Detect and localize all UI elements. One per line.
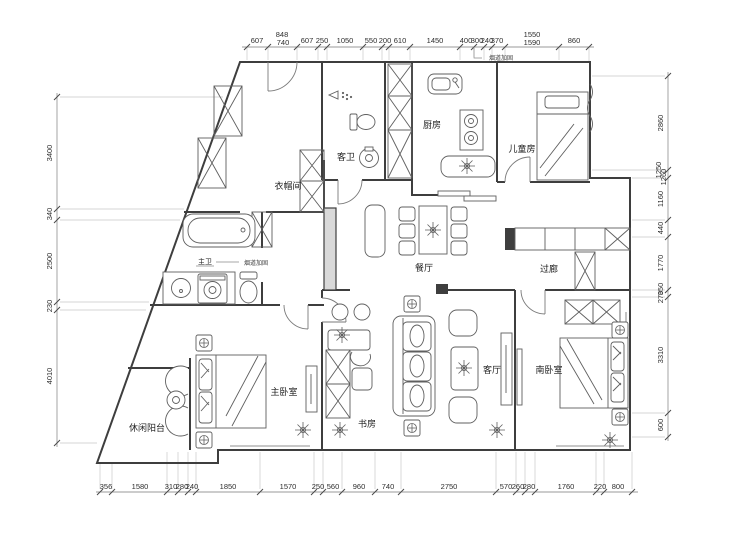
- dim-label: 607: [301, 36, 314, 45]
- dimension-labels-top: 607 848 740 607 250 1050 550 200 610 145…: [251, 30, 581, 47]
- entry-door-icon: [268, 62, 297, 91]
- plant-icon: [295, 422, 311, 438]
- dim-label: 1050: [337, 36, 354, 45]
- cabinet-icon: [388, 64, 412, 96]
- room-label-kitchen: 厨房: [423, 119, 441, 130]
- kitchen-sliding-door-icon: [438, 191, 496, 201]
- dim-label: 3310: [656, 347, 665, 364]
- dim-label: 240: [186, 482, 199, 491]
- dim-label: 1450: [427, 36, 444, 45]
- dim-label: 1580: [132, 482, 149, 491]
- dim-label: 740: [382, 482, 395, 491]
- ottoman-icon: [449, 310, 477, 336]
- dim-label: 607: [251, 36, 264, 45]
- dim-label: 1590: [524, 38, 541, 47]
- dim-label: 610: [394, 36, 407, 45]
- tv-cabinet-icon: [501, 333, 512, 405]
- sofa-icon: [393, 316, 435, 416]
- dim-label: 2500: [45, 253, 54, 270]
- toilet-icon: [350, 114, 375, 130]
- dim-label: 740: [277, 38, 290, 47]
- cabinet-icon: [388, 130, 412, 178]
- dim-label: 280: [523, 482, 536, 491]
- table-lamp-icon: [404, 296, 420, 312]
- wall-columns: [436, 228, 515, 294]
- plant-icon: [489, 422, 505, 438]
- floor-plan-drawing: 607 848 740 607 250 1050 550 200 610 145…: [0, 0, 740, 555]
- room-label-master-bedroom: 主卧室: [270, 386, 297, 397]
- dim-label: 1260: [659, 169, 668, 186]
- flue-note-top: 烟道加固: [489, 54, 513, 62]
- washing-machine-icon: [198, 274, 227, 303]
- guest-bath-door-icon: [338, 180, 362, 204]
- dim-label: 960: [353, 482, 366, 491]
- dimension-labels-left: 3400 340 2500 230 4010: [45, 145, 54, 385]
- stool-icon: [332, 304, 370, 320]
- dim-label: 270: [656, 291, 665, 304]
- dim-label: 3400: [45, 145, 54, 162]
- corridor-cabinet-icon: [575, 252, 595, 290]
- dimension-labels-right: 2860 1250 1260 1160 440 1770 350 270 331…: [654, 115, 668, 432]
- south-bedroom-door-icon: [521, 290, 545, 314]
- dim-label: 2860: [656, 115, 665, 132]
- dim-label: 550: [365, 36, 378, 45]
- room-label-dining: 餐厅: [415, 262, 433, 273]
- door-swings: [268, 62, 545, 329]
- dim-label: 370: [491, 36, 504, 45]
- stove-icon: [460, 110, 483, 150]
- kitchen-sink-icon: [428, 74, 462, 94]
- dimension-labels-bottom: 356 1580 310 280 240 1850 1570 250 560 9…: [100, 482, 625, 491]
- table-lamp-icon: [404, 420, 420, 436]
- dim-label: 1160: [656, 191, 665, 207]
- child-bed-icon: [537, 92, 588, 180]
- room-label-balcony: 休闲阳台: [129, 422, 165, 433]
- dim-label: 340: [45, 208, 54, 221]
- dim-label: 230: [45, 300, 54, 313]
- washbasin-icon: [360, 147, 379, 168]
- dim-label: 1770: [656, 255, 665, 272]
- dim-label: 600: [656, 419, 665, 432]
- washbasin-icon: [172, 279, 191, 298]
- bookshelf-icon: [326, 350, 350, 418]
- room-label-south-bedroom: 南卧室: [535, 364, 562, 375]
- bathtub-icon: [183, 214, 255, 247]
- dim-label: 2750: [441, 482, 458, 491]
- hall-cabinet-icon: [365, 205, 385, 257]
- dim-label: 356: [100, 482, 113, 491]
- cloakroom-wardrobe-icon: [300, 150, 324, 212]
- dim-label: 1570: [280, 482, 297, 491]
- room-label-living-room: 客厅: [483, 364, 501, 375]
- bed-icon: [196, 355, 266, 428]
- dim-label: 560: [327, 482, 340, 491]
- plant-icon: [332, 422, 348, 438]
- south-bedroom-wardrobe-icon: [565, 300, 620, 324]
- corridor-counter-icon: [515, 228, 630, 250]
- dim-label: 570: [500, 482, 513, 491]
- room-label-study: 书房: [358, 418, 376, 429]
- entry-cabinet-icon: [198, 138, 226, 188]
- nightstand-lamp-icon: [196, 335, 212, 351]
- dim-label: 1850: [220, 482, 237, 491]
- ottoman-icon: [449, 397, 477, 423]
- dim-label: 800: [612, 482, 625, 491]
- nightstand-lamp-icon: [612, 322, 628, 338]
- room-label-children-room: 儿童房: [508, 143, 535, 154]
- balcony-table-icon: [167, 391, 185, 409]
- children-room-door-icon: [505, 157, 530, 182]
- dim-label: 440: [656, 222, 665, 235]
- toilet-icon: [240, 272, 257, 303]
- nightstand-lamp-icon: [612, 409, 628, 425]
- dim-label: 250: [316, 36, 329, 45]
- tv-icon: [517, 349, 522, 405]
- master-bedroom-door-icon: [284, 305, 308, 329]
- dim-label: 200: [379, 36, 392, 45]
- dim-label: 250: [312, 482, 325, 491]
- nightstand-lamp-icon: [196, 432, 212, 448]
- room-label-cloakroom: 衣帽间: [274, 180, 301, 191]
- dim-label: 860: [568, 36, 581, 45]
- flue-note-mid: 烟道加固: [244, 259, 268, 267]
- room-label-corridor: 过廊: [540, 263, 558, 274]
- bed-icon: [560, 338, 628, 408]
- dim-label: 4010: [45, 368, 54, 385]
- room-label-master-bath: 主卫: [198, 257, 212, 266]
- dim-label: 1760: [558, 482, 575, 491]
- shower-icon: [329, 91, 352, 100]
- cabinet-icon: [388, 96, 412, 130]
- dim-label: 220: [594, 482, 607, 491]
- room-label-guest-bath: 客卫: [337, 151, 355, 162]
- floor-plan-canvas: 607 848 740 607 250 1050 550 200 610 145…: [0, 0, 740, 555]
- dresser-icon: [306, 366, 317, 412]
